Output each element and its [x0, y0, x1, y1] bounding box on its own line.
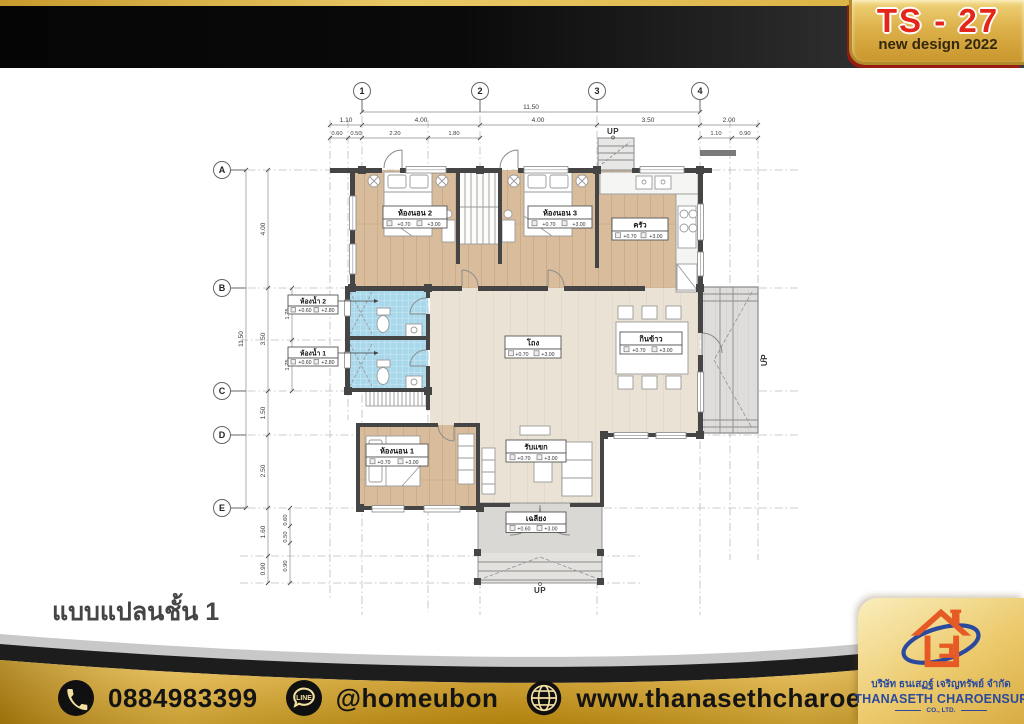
svg-text:LINE: LINE [296, 695, 312, 702]
svg-text:รับแขก: รับแขก [524, 443, 548, 452]
svg-text:4.00: 4.00 [415, 117, 428, 124]
svg-text:+3.00: +3.00 [544, 456, 557, 462]
svg-text:ครัว: ครัว [633, 221, 646, 230]
svg-text:D: D [219, 430, 226, 440]
svg-text:+0.60: +0.60 [298, 360, 311, 366]
svg-text:2.20: 2.20 [389, 131, 400, 137]
svg-text:2: 2 [477, 86, 482, 96]
logo-roof [911, 609, 972, 636]
svg-text:0.90: 0.90 [283, 560, 289, 571]
svg-text:4: 4 [697, 86, 702, 96]
line-icon: LINE [286, 680, 322, 716]
svg-text:+3.00: +3.00 [405, 460, 418, 466]
company-suffix: CO., LTD. [895, 707, 986, 714]
svg-text:UP: UP [607, 127, 619, 136]
svg-text:0.90: 0.90 [260, 562, 267, 575]
svg-text:1.50: 1.50 [260, 406, 267, 419]
svg-text:0.50: 0.50 [350, 131, 361, 137]
svg-text:1.10: 1.10 [340, 117, 353, 124]
phone-icon [58, 680, 94, 716]
svg-text:+0.70: +0.70 [397, 222, 410, 228]
company-logo-panel: บริษัท ธนเสฏฐ์ เจริญทรัพย์ จำกัด THANASE… [858, 598, 1024, 724]
svg-text:+0.70: +0.70 [632, 348, 645, 354]
svg-text:C: C [219, 386, 226, 396]
svg-text:+0.60: +0.60 [298, 308, 311, 314]
svg-text:2.00: 2.00 [723, 117, 736, 124]
svg-text:E: E [219, 503, 225, 513]
company-logo [898, 602, 984, 676]
svg-text:1.10: 1.10 [710, 131, 721, 137]
svg-text:+3.00: +3.00 [544, 526, 557, 532]
svg-text:+0.60: +0.60 [517, 526, 530, 532]
svg-text:+2.80: +2.80 [321, 308, 334, 314]
svg-text:B: B [219, 283, 226, 293]
svg-text:1.80: 1.80 [448, 131, 459, 137]
company-name-en: THANASETH CHAROENSUP [854, 692, 1024, 706]
svg-text:ห้องนอน 3: ห้องนอน 3 [543, 209, 577, 218]
svg-text:+0.70: +0.70 [542, 222, 555, 228]
svg-text:+3.00: +3.00 [572, 222, 585, 228]
model-badge: TS - 27 new design 2022 [849, 0, 1024, 65]
svg-text:+3.00: +3.00 [541, 352, 554, 358]
svg-text:0.90: 0.90 [739, 131, 750, 137]
svg-text:0.60: 0.60 [331, 131, 342, 137]
svg-text:+3.00: +3.00 [659, 348, 672, 354]
svg-text:+2.80: +2.80 [321, 360, 334, 366]
svg-text:+0.70: +0.70 [517, 456, 530, 462]
svg-text:1.60: 1.60 [260, 525, 267, 538]
svg-text:4.00: 4.00 [260, 222, 267, 235]
model-code: TS - 27 [852, 2, 1024, 40]
svg-text:3: 3 [594, 86, 599, 96]
svg-text:UP: UP [534, 586, 546, 595]
svg-text:2.50: 2.50 [260, 464, 267, 477]
svg-text:A: A [219, 165, 226, 175]
svg-text:โถง: โถง [526, 338, 540, 348]
svg-text:+3.00: +3.00 [427, 222, 440, 228]
svg-text:กินข้าว: กินข้าว [639, 335, 663, 344]
svg-text:11.50: 11.50 [523, 104, 539, 111]
svg-text:+0.70: +0.70 [377, 460, 390, 466]
svg-text:+3.00: +3.00 [649, 234, 662, 240]
svg-text:0.50: 0.50 [283, 531, 289, 542]
line-id: @homeubon [336, 683, 499, 714]
svg-text:ห้องนอน 2: ห้องนอน 2 [398, 209, 432, 218]
svg-text:4.00: 4.00 [532, 117, 545, 124]
globe-icon [526, 680, 562, 716]
svg-text:3.50: 3.50 [260, 332, 267, 345]
plan-title: แบบแปลนชั้น 1 [52, 592, 219, 632]
svg-text:1: 1 [359, 86, 364, 96]
svg-text:11.50: 11.50 [238, 331, 245, 347]
svg-text:+0.70: +0.70 [515, 352, 528, 358]
svg-text:+0.70: +0.70 [623, 234, 636, 240]
svg-text:3.50: 3.50 [642, 117, 655, 124]
svg-text:UP: UP [760, 354, 769, 366]
company-name-th: บริษัท ธนเสฏฐ์ เจริญทรัพย์ จำกัด [871, 677, 1011, 692]
svg-text:ห้องนอน 1: ห้องนอน 1 [380, 447, 414, 456]
svg-text:เฉลียง: เฉลียง [526, 514, 547, 523]
phone-number: 0884983399 [108, 683, 258, 714]
svg-text:0.60: 0.60 [283, 514, 289, 525]
